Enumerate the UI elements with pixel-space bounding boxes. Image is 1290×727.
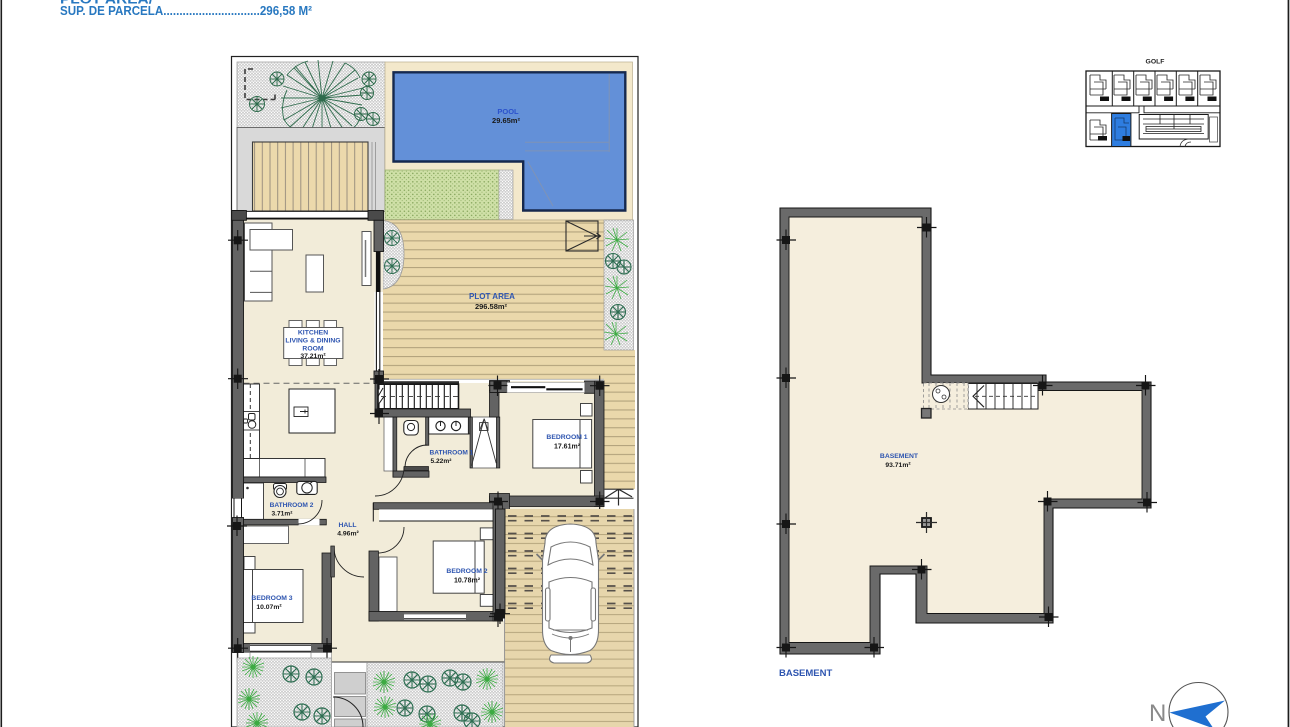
svg-text:POOL: POOL (497, 107, 519, 116)
svg-text:PLOT AREA: PLOT AREA (469, 292, 515, 301)
svg-text:4.96m²: 4.96m² (337, 531, 359, 538)
svg-text:BASEMENT: BASEMENT (880, 453, 919, 460)
svg-text:5.22m²: 5.22m² (431, 458, 453, 465)
svg-text:GOLF: GOLF (1146, 59, 1165, 66)
svg-text:BATHROOM 1: BATHROOM 1 (430, 450, 474, 457)
svg-text:LIVING & DINING: LIVING & DINING (285, 338, 340, 345)
svg-text:BASEMENT: BASEMENT (779, 668, 833, 679)
svg-text:HALL: HALL (338, 522, 356, 529)
svg-text:10.78m²: 10.78m² (454, 578, 481, 585)
svg-text:29.65m²: 29.65m² (492, 116, 520, 125)
svg-text:KITCHEN: KITCHEN (298, 330, 328, 337)
svg-text:3.71m²: 3.71m² (272, 511, 294, 518)
svg-text:ROOM: ROOM (302, 346, 323, 353)
svg-text:37.21m²: 37.21m² (300, 353, 326, 360)
svg-text:BEDROOM 3: BEDROOM 3 (251, 595, 292, 602)
svg-text:BATHROOM 2: BATHROOM 2 (270, 502, 314, 509)
svg-text:BEDROOM 1: BEDROOM 1 (546, 434, 587, 441)
svg-text:17.61m²: 17.61m² (554, 444, 581, 451)
svg-text:SUP. DE PARCELA...............: SUP. DE PARCELA.........................… (60, 4, 312, 18)
svg-text:N: N (1149, 700, 1166, 727)
svg-text:BEDROOM 2: BEDROOM 2 (446, 568, 487, 575)
svg-text:10.07m²: 10.07m² (256, 604, 282, 611)
svg-text:93.71m²: 93.71m² (885, 462, 911, 469)
svg-text:296.58m²: 296.58m² (475, 302, 508, 311)
